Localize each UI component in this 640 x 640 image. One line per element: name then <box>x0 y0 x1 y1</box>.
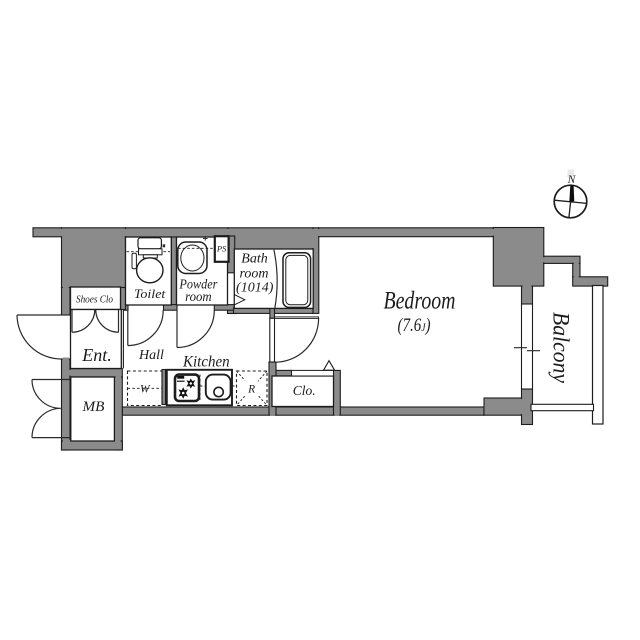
svg-text:Shoes Clo: Shoes Clo <box>76 295 113 306</box>
svg-text:(7.6J): (7.6J) <box>398 315 431 336</box>
svg-text:N: N <box>567 174 577 186</box>
svg-text:Kitchen: Kitchen <box>182 354 230 371</box>
svg-text:Hall: Hall <box>138 348 164 363</box>
svg-text:(1014): (1014) <box>236 280 274 295</box>
svg-text:Toilet: Toilet <box>134 286 166 301</box>
svg-text:R: R <box>247 384 255 396</box>
svg-text:W: W <box>140 384 151 396</box>
svg-text:room: room <box>185 290 212 305</box>
svg-text:Clo.: Clo. <box>293 383 316 398</box>
svg-text:MB: MB <box>81 399 104 415</box>
svg-text:Ent.: Ent. <box>81 345 112 365</box>
svg-text:room: room <box>239 267 268 282</box>
svg-text:Balcony: Balcony <box>548 312 574 384</box>
svg-text:Bedroom: Bedroom <box>384 285 456 314</box>
svg-text:Bath: Bath <box>241 252 267 267</box>
svg-text:PS: PS <box>216 244 227 254</box>
